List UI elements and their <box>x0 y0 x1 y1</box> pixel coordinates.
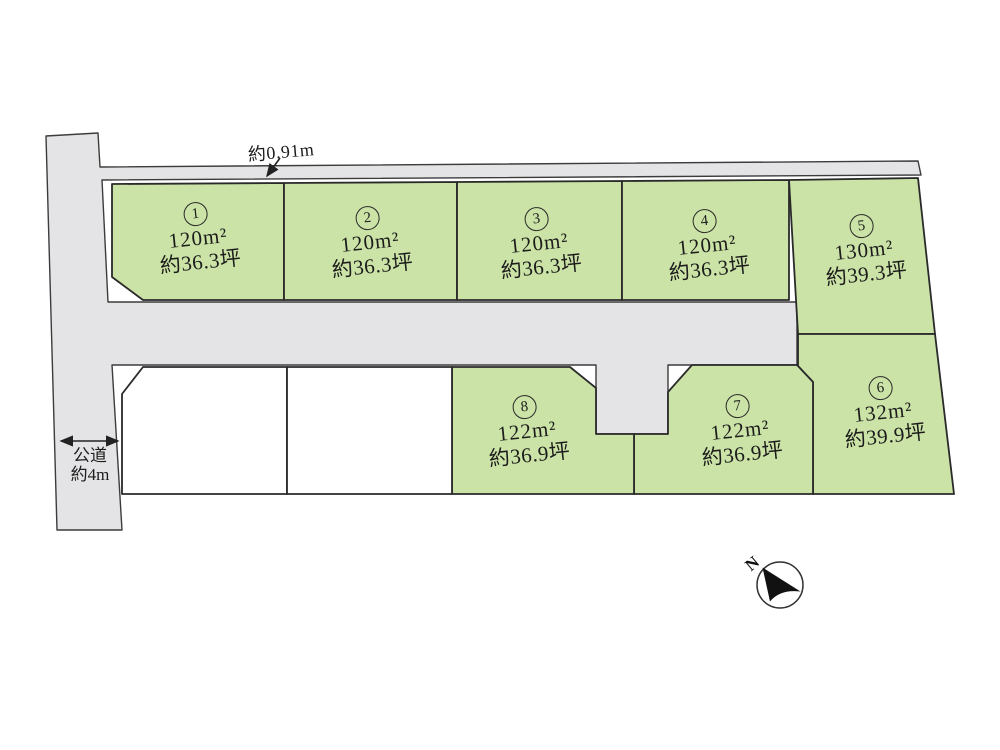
plan-drawing: N <box>0 0 1000 750</box>
land-subdivision-diagram: N 1 120m² 約36.3坪 2 120m² 約36.3坪 3 120m² … <box>0 0 1000 750</box>
road-name-text: 公道 <box>71 446 110 465</box>
north-label: N <box>741 552 763 575</box>
plot-3-label: 3 120m² 約36.3坪 <box>495 203 584 283</box>
plot-8-label: 8 122m² 約36.9坪 <box>483 391 572 471</box>
road-width-label: 公道 約4m <box>71 446 110 484</box>
plot-2-number: 2 <box>354 205 380 231</box>
plot-1-number: 1 <box>182 201 208 227</box>
plot-2-label: 2 120m² 約36.3坪 <box>326 202 415 282</box>
white-lot-right <box>287 367 452 494</box>
plot-7-label: 7 122m² 約36.9坪 <box>696 390 785 470</box>
plot-5-label: 5 130m² 約39.3坪 <box>820 210 909 290</box>
plot-5-number: 5 <box>848 213 874 239</box>
plot-4-label: 4 120m² 約36.3坪 <box>663 205 752 285</box>
plot-4-number: 4 <box>691 208 717 234</box>
white-lot-left <box>122 367 287 494</box>
plot-3-number: 3 <box>523 206 549 232</box>
road-width-text: 約4m <box>71 465 110 484</box>
plot-8-number: 8 <box>511 394 537 420</box>
plot-6-number: 6 <box>867 375 893 401</box>
compass: N <box>741 552 803 608</box>
plot-6-label: 6 132m² 約39.9坪 <box>839 372 928 452</box>
plot-7-number: 7 <box>724 393 750 419</box>
plot-1-label: 1 120m² 約36.3坪 <box>154 198 243 278</box>
